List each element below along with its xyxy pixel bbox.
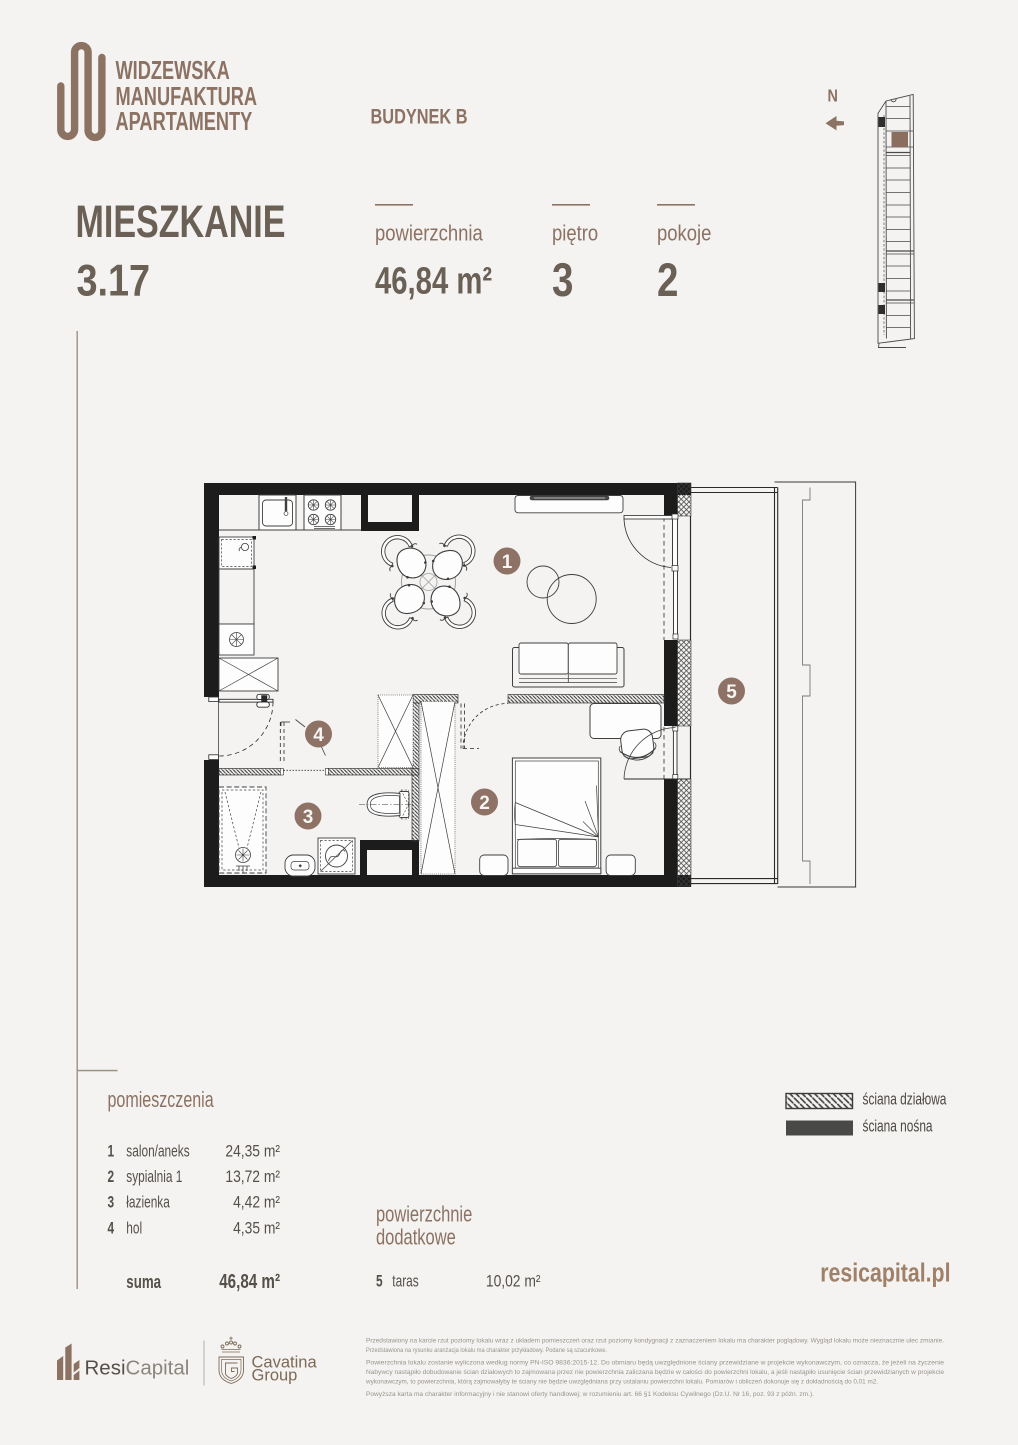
- svg-text:Powierzchnia lokalu zostanie w: Powierzchnia lokalu zostanie wyliczona w…: [366, 1360, 945, 1367]
- svg-text:3: 3: [552, 254, 573, 306]
- svg-text:5: 5: [376, 1273, 383, 1291]
- svg-text:3: 3: [303, 807, 314, 828]
- svg-text:13,72 m²: 13,72 m²: [225, 1168, 280, 1186]
- svg-text:N: N: [828, 86, 838, 106]
- svg-text:4,42 m²: 4,42 m²: [233, 1194, 280, 1212]
- svg-text:46,84 m²: 46,84 m²: [375, 260, 492, 303]
- svg-text:WIDZEWSKA: WIDZEWSKA: [116, 56, 230, 85]
- svg-text:sypialnia 1: sypialnia 1: [126, 1168, 182, 1186]
- svg-text:3: 3: [108, 1194, 115, 1212]
- svg-text:wykonawczym, to powierzchnia,: wykonawczym, to powierzchnia, którą zajm…: [365, 1379, 878, 1386]
- svg-text:5: 5: [726, 682, 737, 703]
- svg-text:24,35 m²: 24,35 m²: [225, 1142, 280, 1160]
- svg-text:hol: hol: [126, 1220, 142, 1238]
- svg-text:Nabywcy nastąpiło dobudowanie: Nabywcy nastąpiło dobudowanie ścian dzia…: [366, 1369, 945, 1376]
- svg-text:Group: Group: [252, 1367, 298, 1385]
- svg-text:pomieszczenia: pomieszczenia: [108, 1089, 214, 1113]
- svg-text:Powyższa karta ma charakter in: Powyższa karta ma charakter informacyjny…: [366, 1391, 814, 1398]
- svg-text:1: 1: [108, 1143, 115, 1161]
- svg-text:1: 1: [502, 552, 513, 573]
- svg-text:powierzchnia: powierzchnia: [375, 222, 483, 246]
- svg-text:4: 4: [313, 725, 324, 746]
- svg-text:ResiCapital: ResiCapital: [85, 1357, 190, 1380]
- svg-text:piętro: piętro: [552, 222, 598, 246]
- svg-text:MIESZKANIE: MIESZKANIE: [76, 198, 286, 248]
- svg-text:46,84 m²: 46,84 m²: [219, 1270, 280, 1293]
- svg-text:Przedstawiona na rysunku aranż: Przedstawiona na rysunku aranżacja lokal…: [366, 1347, 607, 1354]
- svg-text:powierzchnie: powierzchnie: [376, 1202, 472, 1227]
- svg-text:4: 4: [108, 1220, 115, 1238]
- svg-text:dodatkowe: dodatkowe: [376, 1225, 456, 1250]
- svg-text:taras: taras: [392, 1273, 418, 1291]
- svg-text:3.17: 3.17: [77, 256, 151, 306]
- svg-text:APARTAMENTY: APARTAMENTY: [116, 107, 253, 136]
- svg-text:BUDYNEK B: BUDYNEK B: [371, 105, 468, 129]
- svg-text:salon/aneks: salon/aneks: [126, 1143, 189, 1161]
- svg-text:Przedstawiony na karcie rzut p: Przedstawiony na karcie rzut poziomy lok…: [366, 1338, 944, 1345]
- svg-text:suma: suma: [126, 1272, 162, 1293]
- svg-text:ściana nośna: ściana nośna: [863, 1118, 934, 1137]
- svg-text:łazienka: łazienka: [126, 1194, 170, 1212]
- svg-text:2: 2: [108, 1168, 115, 1186]
- svg-text:resicapital.pl: resicapital.pl: [820, 1259, 950, 1289]
- svg-text:2: 2: [479, 793, 490, 814]
- svg-text:2: 2: [657, 254, 678, 306]
- svg-text:10,02 m²: 10,02 m²: [486, 1272, 541, 1290]
- svg-text:ściana działowa: ściana działowa: [863, 1091, 948, 1110]
- svg-text:4,35 m²: 4,35 m²: [233, 1219, 280, 1237]
- svg-text:pokoje: pokoje: [657, 222, 711, 246]
